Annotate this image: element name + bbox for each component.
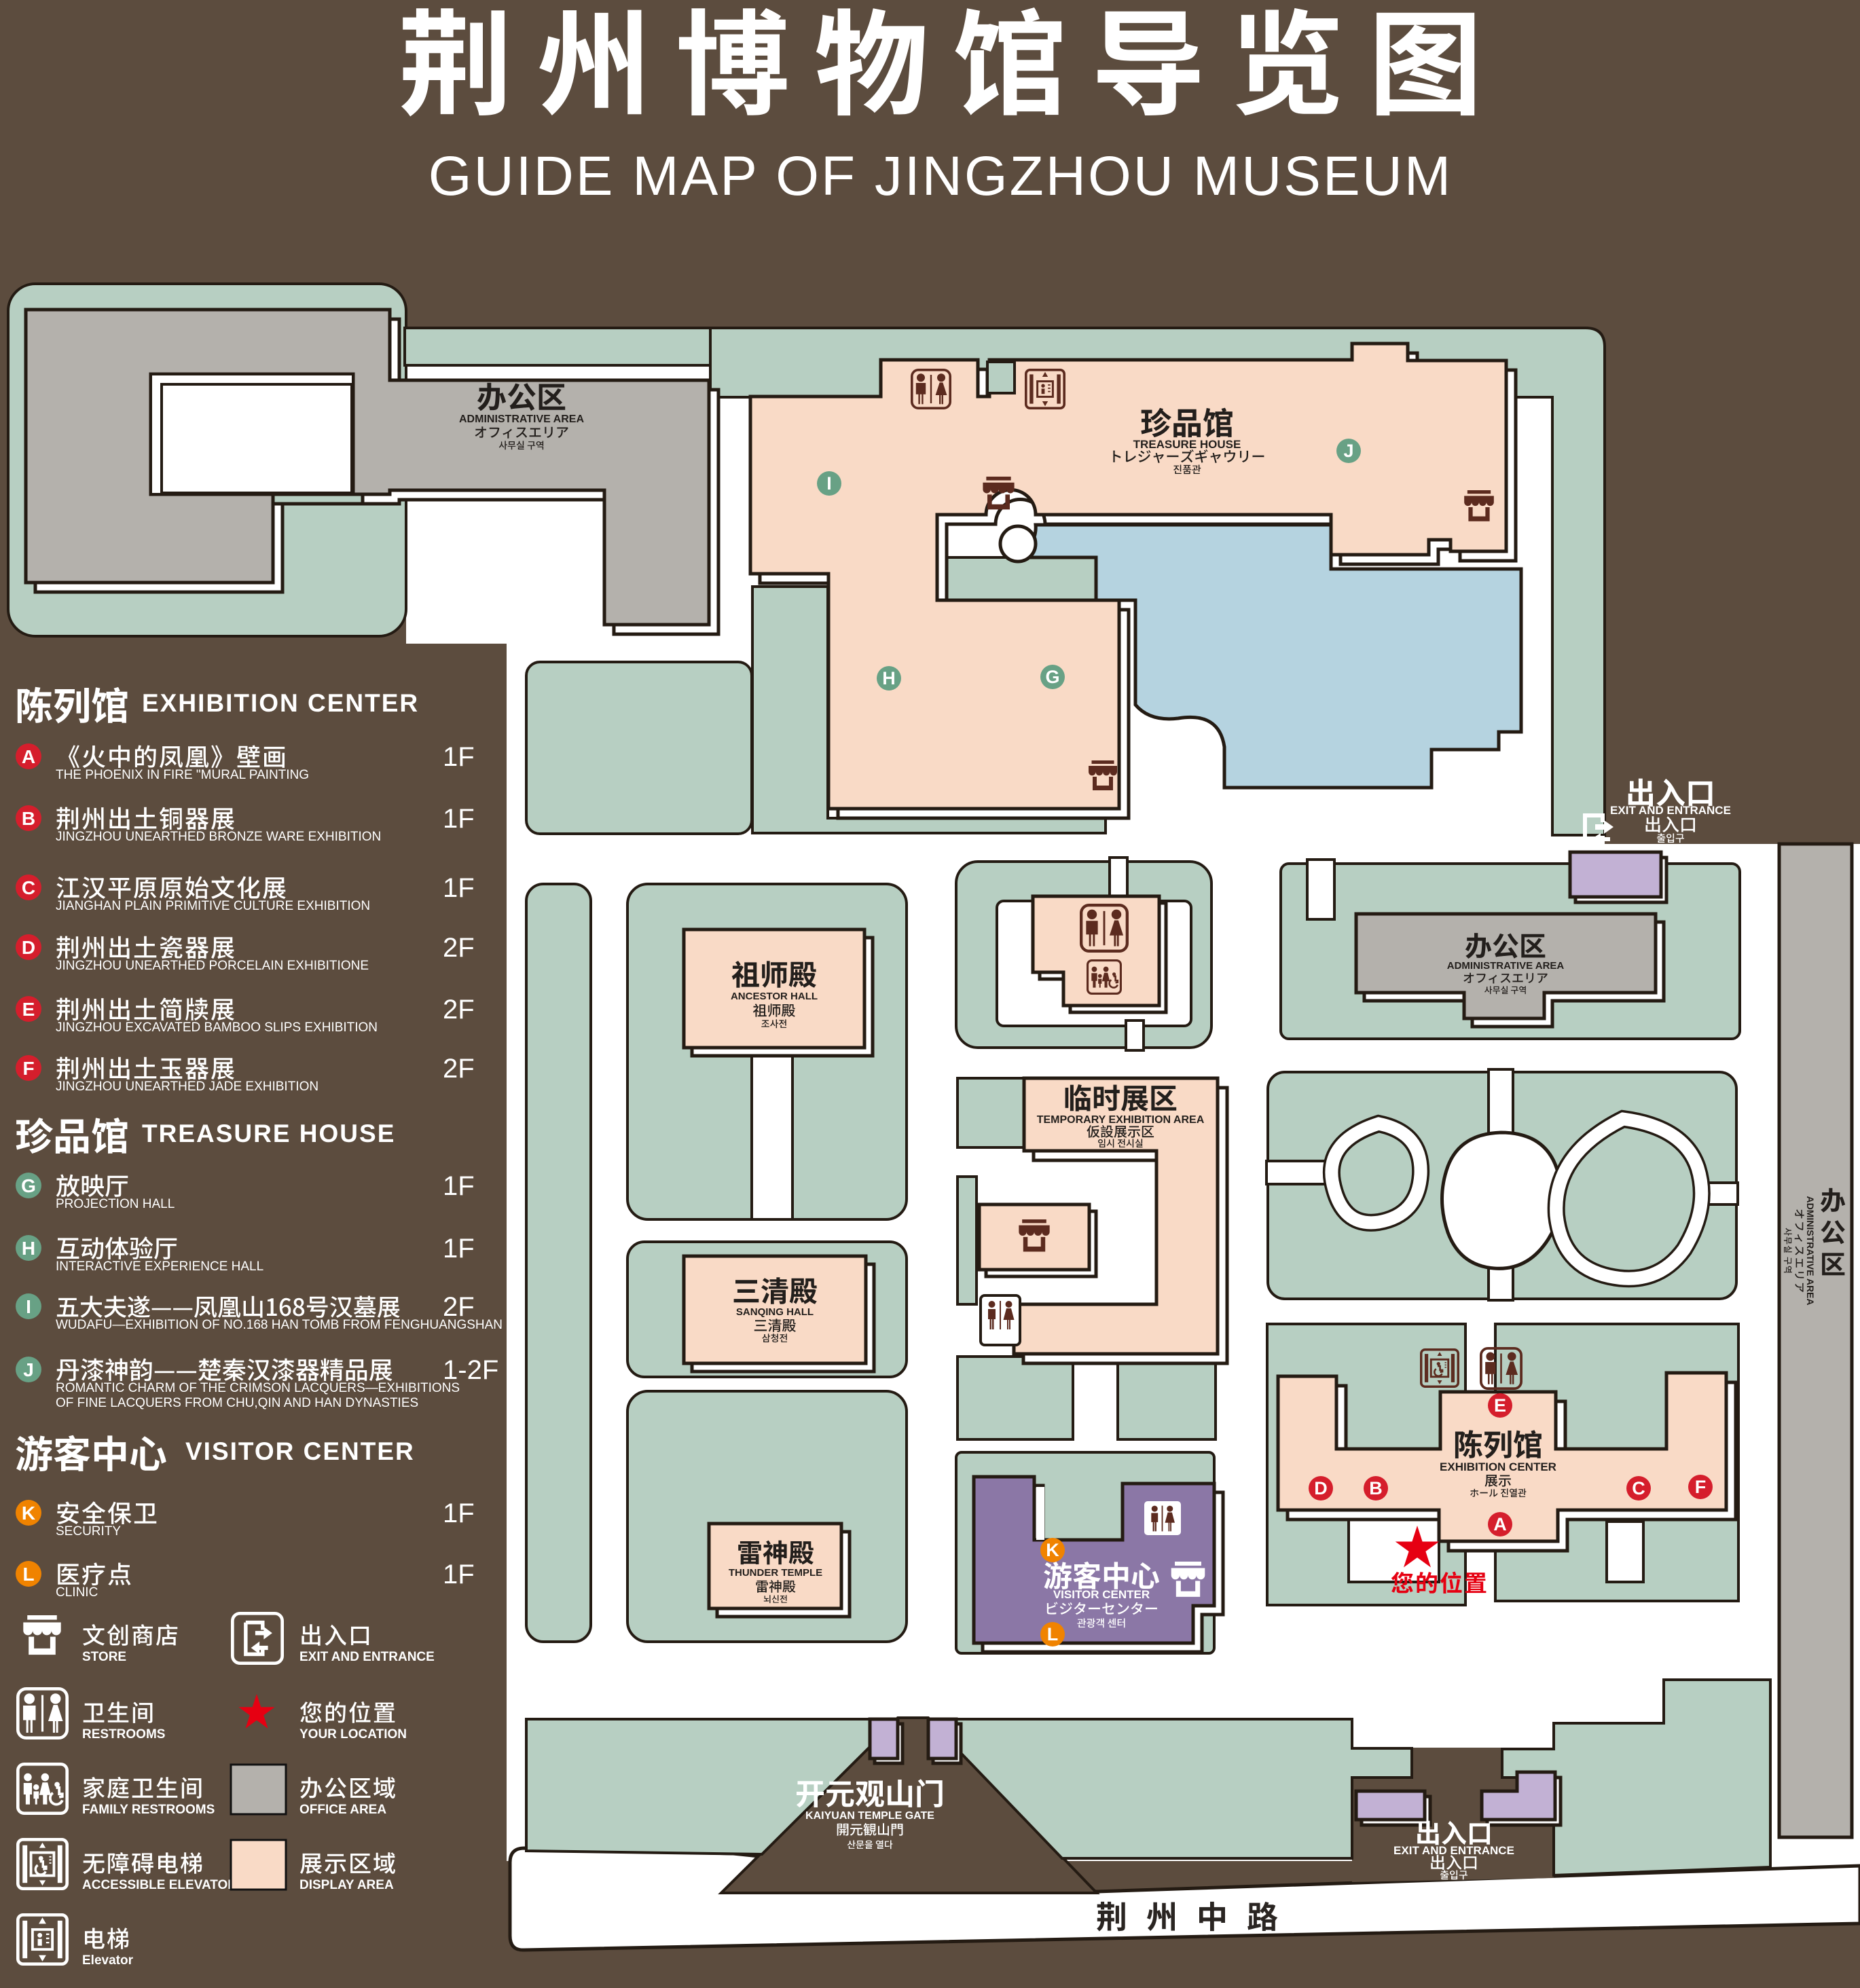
- svg-text:J: J: [23, 1359, 34, 1380]
- svg-text:RESTROOMS: RESTROOMS: [82, 1727, 165, 1742]
- svg-text:H: H: [882, 668, 896, 688]
- svg-text:YOUR LOCATION: YOUR LOCATION: [299, 1727, 407, 1742]
- svg-text:C: C: [1632, 1478, 1645, 1498]
- svg-text:E: E: [22, 999, 35, 1020]
- svg-text:1F: 1F: [443, 1560, 475, 1589]
- svg-text:ACCESSIBLE ELEVATOR: ACCESSIBLE ELEVATOR: [82, 1878, 237, 1892]
- svg-text:EXHIBITION CENTER: EXHIBITION CENTER: [1440, 1460, 1556, 1473]
- svg-text:SANQING HALL: SANQING HALL: [736, 1306, 814, 1318]
- svg-text:D: D: [1314, 1478, 1328, 1498]
- svg-text:VISITOR CENTER: VISITOR CENTER: [185, 1437, 415, 1465]
- svg-text:1-2F: 1-2F: [443, 1355, 498, 1385]
- svg-text:2F: 2F: [443, 995, 475, 1025]
- svg-text:EXIT AND ENTRANCE: EXIT AND ENTRANCE: [299, 1650, 435, 1664]
- svg-text:D: D: [22, 937, 35, 958]
- svg-text:1F: 1F: [443, 742, 475, 772]
- svg-text:KAIYUAN TEMPLE GATE: KAIYUAN TEMPLE GATE: [805, 1810, 934, 1822]
- svg-text:B: B: [1369, 1478, 1383, 1498]
- svg-text:A: A: [1493, 1514, 1507, 1534]
- svg-text:ROMANTIC CHARM OF THE CRIMSON: ROMANTIC CHARM OF THE CRIMSON LACQUERS—E…: [56, 1381, 460, 1395]
- svg-text:EXIT AND ENTRANCE: EXIT AND ENTRANCE: [1610, 804, 1731, 817]
- svg-text:FAMILY RESTROOMS: FAMILY RESTROOMS: [82, 1803, 215, 1817]
- svg-text:K: K: [22, 1503, 35, 1524]
- svg-text:EXIT AND ENTRANCE: EXIT AND ENTRANCE: [1393, 1844, 1514, 1857]
- svg-text:K: K: [1046, 1540, 1059, 1560]
- svg-text:B: B: [22, 808, 35, 829]
- svg-text:F: F: [1695, 1477, 1707, 1497]
- svg-text:1F: 1F: [443, 1498, 475, 1528]
- svg-text:SECURITY: SECURITY: [56, 1524, 121, 1539]
- svg-text:JIANGHAN PLAIN PRIMITIVE CULTU: JIANGHAN PLAIN PRIMITIVE CULTURE EXHIBIT…: [56, 899, 370, 913]
- svg-text:E: E: [1494, 1395, 1506, 1416]
- svg-text:JINGZHOU UNEARTHED BRONZE WARE: JINGZHOU UNEARTHED BRONZE WARE EXHIBITIO…: [56, 830, 381, 844]
- svg-text:OFFICE AREA: OFFICE AREA: [299, 1803, 386, 1817]
- svg-text:J: J: [1343, 441, 1353, 461]
- svg-text:1F: 1F: [443, 1234, 475, 1264]
- svg-text:JINGZHOU UNEARTHED JADE EXHIBI: JINGZHOU UNEARTHED JADE EXHIBITION: [56, 1080, 318, 1094]
- svg-text:2F: 2F: [443, 933, 475, 963]
- svg-text:ANCESTOR HALL: ANCESTOR HALL: [731, 991, 818, 1002]
- svg-text:INTERACTIVE EXPERIENCE HALL: INTERACTIVE EXPERIENCE HALL: [56, 1259, 263, 1274]
- svg-text:1F: 1F: [443, 1171, 475, 1201]
- svg-text:STORE: STORE: [82, 1650, 126, 1664]
- svg-text:G: G: [1045, 667, 1059, 687]
- svg-text:VISITOR CENTER: VISITOR CENTER: [1053, 1588, 1150, 1601]
- svg-text:I: I: [826, 473, 832, 494]
- svg-text:THE PHOENIX IN FIRE "MURAL PAI: THE PHOENIX IN FIRE "MURAL PAINTING: [56, 768, 309, 782]
- svg-text:1F: 1F: [443, 873, 475, 903]
- svg-text:C: C: [22, 877, 35, 898]
- svg-text:A: A: [22, 746, 35, 767]
- svg-text:TREASURE HOUSE: TREASURE HOUSE: [142, 1120, 395, 1147]
- svg-text:I: I: [26, 1296, 31, 1317]
- svg-text:ADMINISTRATIVE AREA: ADMINISTRATIVE AREA: [459, 413, 584, 425]
- svg-text:L: L: [1047, 1624, 1059, 1644]
- svg-text:L: L: [22, 1564, 34, 1585]
- svg-text:PROJECTION HALL: PROJECTION HALL: [56, 1197, 175, 1211]
- svg-text:H: H: [22, 1238, 35, 1259]
- svg-text:Elevator: Elevator: [82, 1953, 134, 1968]
- svg-text:2F: 2F: [443, 1292, 475, 1322]
- svg-text:THUNDER TEMPLE: THUNDER TEMPLE: [729, 1567, 822, 1579]
- svg-text:DISPLAY AREA: DISPLAY AREA: [299, 1878, 394, 1892]
- svg-text:WUDAFU—EXHIBITION OF NO.168 HA: WUDAFU—EXHIBITION OF NO.168 HAN TOMB FRO…: [56, 1318, 503, 1332]
- svg-text:TREASURE HOUSE: TREASURE HOUSE: [1133, 438, 1241, 451]
- svg-text:JINGZHOU UNEARTHED PORCELAIN E: JINGZHOU UNEARTHED PORCELAIN EXHIBITIONE: [56, 959, 369, 973]
- svg-text:JINGZHOU EXCAVATED BAMBOO SLIP: JINGZHOU EXCAVATED BAMBOO SLIPS EXHIBITI…: [56, 1020, 378, 1035]
- svg-text:TEMPORARY EXHIBITION AREA: TEMPORARY EXHIBITION AREA: [1037, 1114, 1205, 1126]
- svg-text:F: F: [22, 1058, 34, 1079]
- svg-text:ADMINISTRATIVE AREA: ADMINISTRATIVE AREA: [1805, 1196, 1816, 1306]
- svg-text:1F: 1F: [443, 804, 475, 834]
- svg-text:OF FINE LACQUERS FROM CHU,QIN: OF FINE LACQUERS FROM CHU,QIN AND HAN DY…: [56, 1396, 418, 1410]
- svg-text:CLINIC: CLINIC: [56, 1585, 98, 1600]
- svg-text:GUIDE MAP OF JINGZHOU MUSEUM: GUIDE MAP OF JINGZHOU MUSEUM: [428, 145, 1453, 207]
- svg-text:EXHIBITION CENTER: EXHIBITION CENTER: [142, 689, 419, 717]
- svg-text:G: G: [21, 1175, 36, 1196]
- svg-text:ADMINISTRATIVE AREA: ADMINISTRATIVE AREA: [1447, 960, 1565, 972]
- svg-text:2F: 2F: [443, 1054, 475, 1084]
